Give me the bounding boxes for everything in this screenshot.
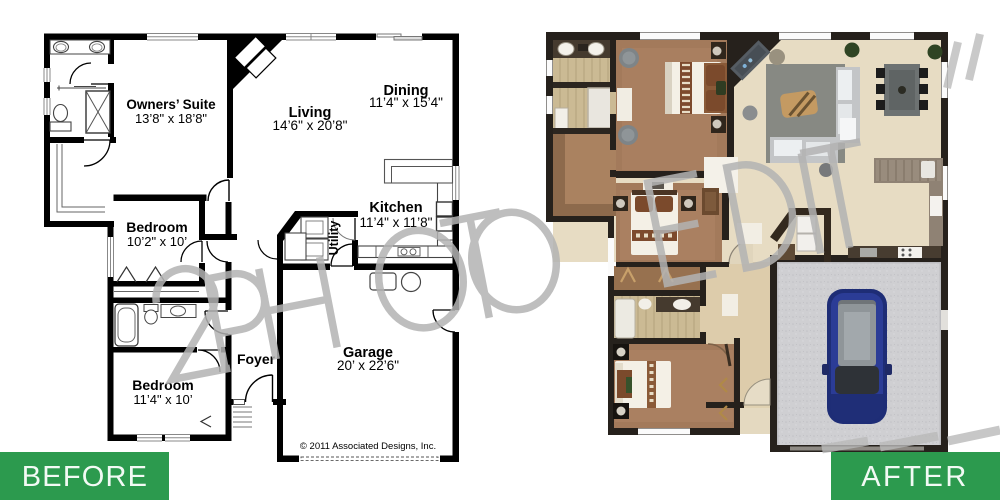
- svg-text:Bedroom: Bedroom: [126, 219, 187, 235]
- svg-text:13’8" x 18’8": 13’8" x 18’8": [135, 111, 207, 126]
- svg-text:11’4" x 10’: 11’4" x 10’: [133, 392, 192, 407]
- svg-text:11’4" x 15’4": 11’4" x 15’4": [369, 95, 443, 110]
- svg-text:Owners’ Suite: Owners’ Suite: [126, 97, 216, 112]
- svg-text:Utility: Utility: [327, 221, 341, 256]
- svg-text:14’6" x 20’8": 14’6" x 20’8": [273, 118, 348, 133]
- svg-text:20’ x 22’6": 20’ x 22’6": [337, 358, 399, 373]
- svg-text:Kitchen: Kitchen: [369, 200, 422, 216]
- svg-text:Foyer: Foyer: [237, 351, 276, 367]
- svg-text:AFTER: AFTER: [861, 461, 969, 493]
- svg-text:© 2011 Associated Designs, Inc: © 2011 Associated Designs, Inc.: [300, 441, 436, 452]
- svg-text:10’2" x 10’: 10’2" x 10’: [127, 234, 187, 249]
- svg-text:BEFORE: BEFORE: [22, 461, 148, 493]
